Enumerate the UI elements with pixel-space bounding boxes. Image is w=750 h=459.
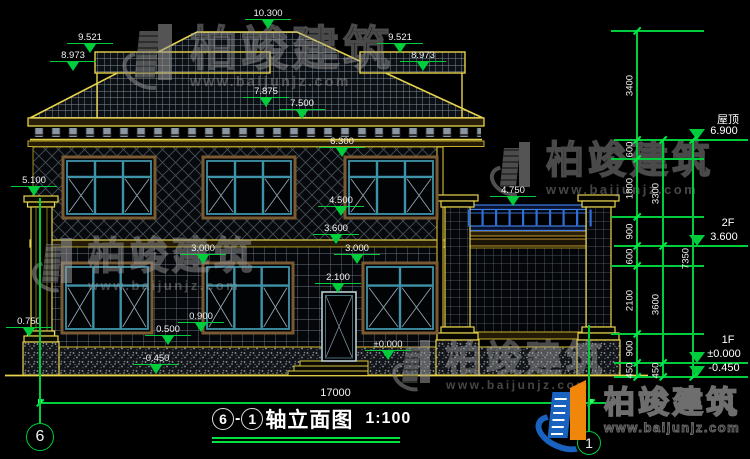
elevation-value: 2.100 — [310, 272, 366, 283]
elevation-value: 3.000 — [329, 243, 385, 254]
level-name: 屋顶 — [706, 111, 750, 127]
elevation-marker: 3.000 — [329, 243, 385, 264]
elevation-marker: 0.750 — [1, 316, 57, 337]
elevation-value: 7.875 — [238, 86, 294, 97]
elevation-marker: 3.600 — [308, 223, 364, 244]
axis-line-6 — [39, 198, 40, 423]
elevation-value: -0.450 — [128, 353, 184, 364]
elevation-value: 7.500 — [274, 98, 330, 109]
elevation-marker: 5.100 — [6, 175, 62, 196]
elevation-marker: 7.875 — [238, 86, 294, 107]
elevation-value: 10.300 — [240, 8, 296, 19]
dim-value: 450 — [651, 353, 662, 387]
dim-chain-line — [692, 140, 693, 377]
dim-chain-line — [662, 140, 663, 377]
title-underline — [212, 441, 400, 443]
dim-value: 3400 — [625, 68, 636, 102]
dim-value: 1800 — [625, 171, 636, 205]
elevation-value: 8.973 — [395, 50, 451, 61]
elevation-value: 0.900 — [173, 311, 229, 322]
elevation-marker: 8.973 — [45, 50, 101, 71]
axis-bubble-6: 6 — [26, 423, 54, 451]
level-value: -0.450 — [700, 362, 748, 374]
elevation-value: 3.000 — [175, 243, 231, 254]
title-text: 轴立面图 — [265, 404, 353, 434]
elevation-marker: 3.000 — [175, 243, 231, 264]
dim-value: 7350 — [681, 241, 692, 275]
level-name: 2F — [706, 217, 750, 229]
dim-value: 600 — [625, 239, 636, 273]
elevation-marker: ±0.000 — [360, 339, 416, 360]
dim-value: 600 — [625, 132, 636, 166]
elevation-marker: 8.973 — [395, 50, 451, 71]
level-value: ±0.000 — [700, 348, 748, 360]
level-name: 1F — [706, 334, 750, 346]
title-axis-from: 6 — [212, 408, 234, 430]
dim-value: 3600 — [651, 287, 662, 321]
dim-value: 2100 — [625, 283, 636, 317]
dim-chain-line — [636, 31, 637, 377]
elevation-marker: 10.300 — [240, 8, 296, 29]
elevation-value: 3.600 — [308, 223, 364, 234]
elevation-value: 0.750 — [1, 316, 57, 327]
bottom-dim-value: 17000 — [276, 387, 396, 399]
drawing-title: 6 - 1 轴立面图 1:100 — [212, 404, 411, 443]
title-axis-to: 1 — [241, 408, 263, 430]
title-scale: 1:100 — [365, 410, 411, 428]
elevation-marker: -0.450 — [128, 353, 184, 374]
dim-line — [611, 30, 704, 31]
elevation-value: 4.500 — [313, 195, 369, 206]
axis-bubble-label: 6 — [36, 428, 45, 446]
elevation-value: 9.521 — [372, 32, 428, 43]
elevation-value: 5.100 — [6, 175, 62, 186]
elevation-marker: 0.500 — [140, 324, 196, 345]
elevation-value: 0.500 — [140, 324, 196, 335]
company-logo-brand: 柏竣建筑 — [604, 386, 740, 420]
dim-value: 450 — [625, 353, 636, 387]
elevation-marker: 9.521 — [62, 32, 118, 53]
title-underline — [212, 437, 400, 439]
elevation-marker: 4.750 — [485, 185, 541, 206]
dim-value: 3300 — [651, 176, 662, 210]
cad-elevation-drawing: 柏竣建筑 www.baijunjz.com 柏竣建筑 www.baijunjz.… — [0, 0, 750, 459]
title-separator: - — [235, 410, 240, 428]
elevation-marker: 4.500 — [313, 195, 369, 216]
company-logo-icon — [534, 386, 598, 452]
company-logo-site: www.baijunjz.com — [604, 420, 740, 435]
elevation-marker: 0.900 — [173, 311, 229, 332]
elevation-marker: 2.100 — [310, 272, 366, 293]
company-logo: 柏竣建筑 www.baijunjz.com — [534, 386, 740, 452]
elevation-value: 4.750 — [485, 185, 541, 196]
elevation-marker: 7.500 — [274, 98, 330, 119]
elevation-value: ±0.000 — [360, 339, 416, 350]
level-value: 3.600 — [700, 231, 748, 243]
elevation-value: 6.300 — [314, 136, 370, 147]
elevation-marker: 9.521 — [372, 32, 428, 53]
elevation-marker: 6.300 — [314, 136, 370, 157]
elevation-value: 9.521 — [62, 32, 118, 43]
elevation-value: 8.973 — [45, 50, 101, 61]
